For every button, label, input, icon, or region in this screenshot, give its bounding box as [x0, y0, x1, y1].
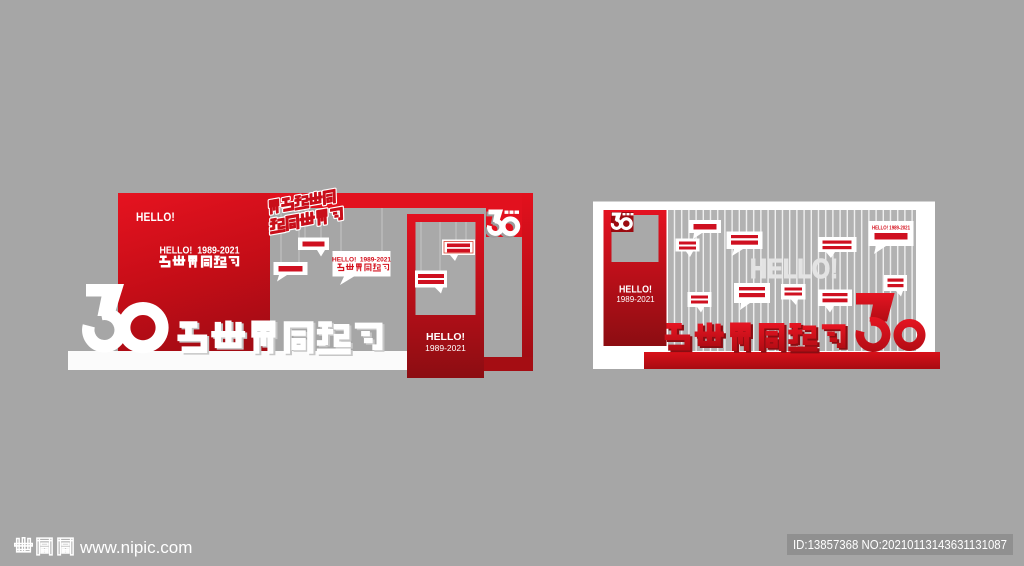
svg-text:HELLO! 1989-2021: HELLO! 1989-2021 [872, 226, 910, 232]
svg-text:www.nipic.com: www.nipic.com [79, 538, 192, 557]
svg-text:HELLO!: HELLO! [750, 253, 838, 284]
svg-text:1989-2021: 1989-2021 [425, 343, 466, 353]
svg-text:HELLO!: HELLO! [136, 212, 175, 224]
svg-text:1989-2021: 1989-2021 [616, 295, 655, 304]
svg-text:HELLO!: HELLO! [619, 285, 652, 296]
svg-text:HELLO!: HELLO! [426, 331, 465, 343]
svg-text:HELLO! 1989-2021: HELLO! 1989-2021 [332, 257, 391, 264]
svg-text:HELLO! 1989-2021: HELLO! 1989-2021 [160, 246, 240, 257]
svg-text:ID:13857368 NO:202101131436311: ID:13857368 NO:20210113143631131087 [793, 538, 1007, 552]
